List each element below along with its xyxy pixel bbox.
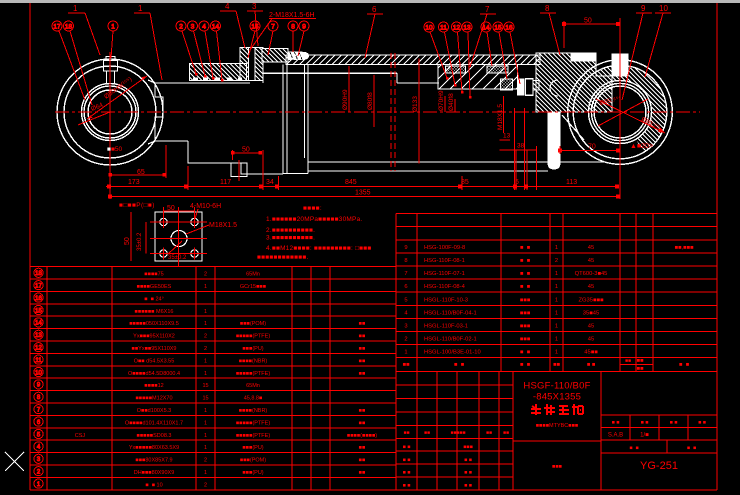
svg-text:■ ■: ■ ■ xyxy=(687,446,696,452)
svg-text:■■■80X85X7.9: ■■■80X85X7.9 xyxy=(135,458,172,464)
svg-text:■■: ■■ xyxy=(486,430,492,436)
svg-text:35±0.2: 35±0.2 xyxy=(168,255,187,261)
svg-text:■ ■: ■ ■ xyxy=(520,245,531,251)
svg-text:1: 1 xyxy=(204,420,207,426)
svg-text:14: 14 xyxy=(35,321,42,327)
svg-text:HSG-110F-07-1: HSG-110F-07-1 xyxy=(424,271,465,277)
svg-text:■ ■: ■ ■ xyxy=(587,362,596,368)
svg-text:HSGL-110F-03-1: HSGL-110F-03-1 xyxy=(424,323,468,329)
svg-text:5: 5 xyxy=(404,297,407,303)
svg-text:■ ■: ■ ■ xyxy=(403,470,411,476)
svg-text:■■■■■(PTFE): ■■■■■(PTFE) xyxy=(236,420,270,426)
svg-text:1: 1 xyxy=(204,309,207,315)
svg-text:■■50: ■■50 xyxy=(107,146,122,153)
svg-text:45: 45 xyxy=(588,245,594,251)
svg-text:1: 1 xyxy=(555,350,558,356)
svg-text:■■■(POM): ■■■(POM) xyxy=(240,458,266,464)
svg-text:5: 5 xyxy=(515,179,519,186)
svg-text:■ ■: ■ ■ xyxy=(520,350,531,356)
svg-text:3: 3 xyxy=(404,323,407,329)
svg-text:■■: ■■ xyxy=(359,408,366,414)
svg-text:■■■: ■■■ xyxy=(520,310,531,316)
svg-text:1.■■■■■■20MPa■■■■■30MPa.: 1.■■■■■■20MPa■■■■■30MPa. xyxy=(266,216,362,223)
svg-text:■ ■: ■ ■ xyxy=(641,420,649,426)
svg-text:11: 11 xyxy=(440,25,447,32)
svg-text:■■■■(NBR): ■■■■(NBR) xyxy=(239,408,268,414)
svg-text:HSG-110F-08-4: HSG-110F-08-4 xyxy=(424,284,466,290)
svg-text:■■■■GE50ES: ■■■■GE50ES xyxy=(137,284,172,290)
svg-text:■ ■ 24°: ■ ■ 24° xyxy=(144,296,164,302)
svg-text:■ ■: ■ ■ xyxy=(403,457,411,463)
svg-text:CSJ: CSJ xyxy=(75,433,86,439)
svg-text:65Mn: 65Mn xyxy=(246,383,260,389)
svg-text:38: 38 xyxy=(517,143,525,150)
svg-text:65: 65 xyxy=(137,169,145,176)
svg-text:HSGL-110/B0F-04-1: HSGL-110/B0F-04-1 xyxy=(424,310,477,316)
svg-text:O■■■■d101.4X110X1.7: O■■■■d101.4X110X1.7 xyxy=(125,420,183,426)
svg-text:45: 45 xyxy=(588,323,594,329)
svg-text:15: 15 xyxy=(494,25,502,32)
svg-text:■■Yx■■95X110X9: ■■Yx■■95X110X9 xyxy=(132,346,177,352)
svg-text:14: 14 xyxy=(212,24,220,31)
svg-text:Ø80f8: Ø80f8 xyxy=(367,92,374,110)
svg-text:■■■■(NBR): ■■■■(NBR) xyxy=(239,358,268,364)
svg-text:■■: ■■ xyxy=(359,420,366,426)
svg-text:50: 50 xyxy=(584,18,592,25)
svg-text:■■: ■■ xyxy=(359,445,366,451)
svg-text:14: 14 xyxy=(482,25,490,32)
svg-text:3.■■■■■■■■■■.: 3.■■■■■■■■■■. xyxy=(266,235,315,242)
svg-text:HSGL-100/B3E-01-10: HSGL-100/B3E-01-10 xyxy=(424,350,481,356)
svg-text:45: 45 xyxy=(588,336,594,342)
svg-text:6: 6 xyxy=(372,5,377,14)
svg-text:■■: ■■ xyxy=(503,430,509,436)
svg-text:8: 8 xyxy=(404,258,407,264)
svg-text:■■: ■■ xyxy=(359,470,366,476)
svg-text:16: 16 xyxy=(505,25,513,32)
svg-text:■ ■: ■ ■ xyxy=(670,420,678,426)
svg-text:■■■■■050X110X9.5: ■■■■■050X110X9.5 xyxy=(129,321,179,327)
svg-text:■ ■: ■ ■ xyxy=(612,420,620,426)
svg-text:2: 2 xyxy=(555,258,558,264)
svg-text:1: 1 xyxy=(555,245,558,251)
svg-text:9: 9 xyxy=(302,24,306,31)
svg-text:■■■: ■■■ xyxy=(520,297,531,303)
svg-text:■■: ■■ xyxy=(402,362,410,368)
svg-text:3: 3 xyxy=(191,24,195,31)
svg-text:6: 6 xyxy=(404,284,407,290)
svg-text:HSGL-110F-10-3: HSGL-110F-10-3 xyxy=(424,297,468,303)
svg-text:YG-251: YG-251 xyxy=(640,460,678,472)
svg-text:■■■■12: ■■■■12 xyxy=(144,383,163,389)
svg-text:■ ■: ■ ■ xyxy=(464,470,472,476)
svg-text:13: 13 xyxy=(463,25,471,32)
svg-text:17: 17 xyxy=(35,284,42,290)
svg-text:O■■ d54.5X3.55: O■■ d54.5X3.55 xyxy=(134,358,175,364)
svg-text:■ ■: ■ ■ xyxy=(403,483,411,489)
svg-text:1: 1 xyxy=(555,284,558,290)
svg-text:15: 15 xyxy=(202,396,208,402)
svg-text:■■■■■■ M6X16: ■■■■■■ M6X16 xyxy=(135,309,174,315)
svg-text:■■■(POM): ■■■(POM) xyxy=(240,321,266,327)
svg-text:■■: ■■ xyxy=(625,358,631,364)
svg-text:■■: ■■ xyxy=(359,346,366,352)
svg-text:1: 1 xyxy=(111,24,115,31)
svg-text:■■■■■(PTFE): ■■■■■(PTFE) xyxy=(236,371,270,377)
svg-text:15: 15 xyxy=(251,24,259,31)
svg-text:10: 10 xyxy=(35,370,42,376)
svg-text:■■■(PU): ■■■(PU) xyxy=(242,346,263,352)
svg-text:■■■(PU): ■■■(PU) xyxy=(242,470,263,476)
svg-text:■■■: ■■■ xyxy=(552,464,562,470)
svg-text:■■■■75: ■■■■75 xyxy=(144,272,163,278)
svg-text:■■■(PU): ■■■(PU) xyxy=(242,445,263,451)
svg-text:1: 1 xyxy=(555,271,558,277)
svg-text:1: 1 xyxy=(204,470,207,476)
svg-text:■■: ■■ xyxy=(636,358,644,364)
svg-text:117: 117 xyxy=(220,179,231,186)
svg-text:■■■■■M12X70: ■■■■■M12X70 xyxy=(135,396,172,402)
svg-text:■ ■: ■ ■ xyxy=(698,420,706,426)
svg-text:■■■■■SD08.3: ■■■■■SD08.3 xyxy=(137,433,172,439)
svg-text:45: 45 xyxy=(588,258,594,264)
svg-text:50: 50 xyxy=(242,147,250,154)
svg-text:■ ■: ■ ■ xyxy=(464,483,472,489)
svg-text:45■■: 45■■ xyxy=(584,350,598,356)
svg-text:Ø40f8: Ø40f8 xyxy=(448,93,455,111)
svg-text:■■■: ■■■ xyxy=(463,445,473,451)
svg-text:2: 2 xyxy=(204,458,207,464)
svg-text:■ ■: ■ ■ xyxy=(403,445,411,451)
svg-text:1: 1 xyxy=(204,358,207,364)
svg-text:1: 1 xyxy=(204,408,207,414)
svg-text:QT600-3■45: QT600-3■45 xyxy=(575,271,608,277)
svg-text:12: 12 xyxy=(35,346,42,352)
svg-text:1: 1 xyxy=(555,323,558,329)
svg-text:■■: ■■ xyxy=(359,458,366,464)
svg-text:2: 2 xyxy=(204,482,207,488)
svg-text:8: 8 xyxy=(291,24,295,31)
svg-text:ZG35■■■: ZG35■■■ xyxy=(578,297,604,303)
svg-text:■■■: ■■■ xyxy=(520,323,531,329)
svg-text:■■■■■(PTFE): ■■■■■(PTFE) xyxy=(236,433,270,439)
svg-text:9: 9 xyxy=(404,245,407,251)
svg-text:■■■■:: ■■■■: xyxy=(303,205,322,212)
svg-text:2: 2 xyxy=(179,24,183,31)
svg-text:Yx■■■95X110X2: Yx■■■95X110X2 xyxy=(133,334,175,340)
svg-text:173: 173 xyxy=(128,179,140,186)
svg-text:HSG-100F-09-8: HSG-100F-09-8 xyxy=(424,245,465,251)
svg-text:1: 1 xyxy=(138,4,143,13)
svg-text:■ ■: ■ ■ xyxy=(629,446,638,452)
svg-text:13: 13 xyxy=(35,333,42,339)
svg-text:11: 11 xyxy=(35,358,42,364)
svg-text:■■■■MTYBC■■■: ■■■■MTYBC■■■ xyxy=(536,423,579,429)
svg-text:4: 4 xyxy=(225,2,230,11)
svg-text:10: 10 xyxy=(659,4,668,13)
svg-text:■■■■(■■■■): ■■■■(■■■■) xyxy=(347,433,377,439)
svg-text:35■45: 35■45 xyxy=(583,310,599,316)
svg-text:10: 10 xyxy=(425,25,433,32)
svg-text:Ø133: Ø133 xyxy=(412,96,419,112)
svg-text:Ø70H9: Ø70H9 xyxy=(438,90,445,111)
svg-text:65Mn: 65Mn xyxy=(246,272,260,278)
svg-text:50: 50 xyxy=(124,237,131,245)
svg-text:■□■■P(□■): ■□■■P(□■) xyxy=(119,202,155,209)
svg-text:8: 8 xyxy=(545,4,550,13)
svg-text:1/■: 1/■ xyxy=(640,433,649,439)
svg-text:1: 1 xyxy=(555,297,558,303)
svg-text:7: 7 xyxy=(271,24,275,31)
svg-text:GCr15■■■: GCr15■■■ xyxy=(240,284,266,290)
svg-text:■ ■: ■ ■ xyxy=(454,362,465,368)
svg-text:1: 1 xyxy=(73,4,78,13)
svg-text:15: 15 xyxy=(202,383,208,389)
svg-text:■■: ■■ xyxy=(553,362,561,368)
svg-text:■■■■■: ■■■■■ xyxy=(450,430,465,436)
svg-text:■■■: ■■■ xyxy=(520,336,531,342)
svg-text:2: 2 xyxy=(204,346,207,352)
svg-text:34: 34 xyxy=(266,179,274,186)
svg-text:■ ■: ■ ■ xyxy=(520,258,531,264)
svg-text:■■: ■■ xyxy=(359,358,366,364)
svg-text:113: 113 xyxy=(566,179,577,186)
svg-text:O■■d100X5.3: O■■d100X5.3 xyxy=(137,408,171,414)
svg-text:S.A.B: S.A.B xyxy=(608,433,623,439)
svg-text:18: 18 xyxy=(35,271,42,277)
svg-text:2: 2 xyxy=(404,336,407,342)
svg-text:Yx■■■■■80X63.5X9: Yx■■■■■80X63.5X9 xyxy=(129,445,179,451)
svg-text:■ ■: ■ ■ xyxy=(464,457,472,463)
svg-text:1: 1 xyxy=(204,284,207,290)
svg-text:M18X1.5: M18X1.5 xyxy=(497,104,504,130)
svg-text:▲■20>: ▲■20> xyxy=(630,143,653,150)
svg-text:2: 2 xyxy=(204,272,207,278)
svg-text:Ø90H9: Ø90H9 xyxy=(342,89,349,110)
svg-text:HSG-110F-08-1: HSG-110F-08-1 xyxy=(424,258,465,264)
svg-text:45,8.8■: 45,8.8■ xyxy=(244,396,263,402)
svg-text:HSGL-110/B0F-02-1: HSGL-110/B0F-02-1 xyxy=(424,336,477,342)
svg-text:1: 1 xyxy=(555,310,558,316)
svg-text:■ ■: ■ ■ xyxy=(520,284,531,290)
svg-text:845: 845 xyxy=(345,179,357,186)
svg-text:1: 1 xyxy=(204,321,207,327)
svg-text:■ ■: ■ ■ xyxy=(520,362,531,368)
svg-text:■ ■: ■ ■ xyxy=(679,362,690,368)
svg-text:■ ■: ■ ■ xyxy=(520,271,531,277)
svg-text:2.■■■■■■■■■■.: 2.■■■■■■■■■■. xyxy=(266,227,315,234)
svg-text:■■■■■■■■■■■■.: ■■■■■■■■■■■■. xyxy=(257,254,309,261)
svg-text:■ ■ 10: ■ ■ 10 xyxy=(145,482,162,488)
svg-text:9: 9 xyxy=(641,4,646,13)
svg-text:M18X1.5: M18X1.5 xyxy=(209,222,237,229)
svg-text:16: 16 xyxy=(35,296,42,302)
svg-text:2: 2 xyxy=(204,334,207,340)
svg-text:18: 18 xyxy=(65,24,73,31)
svg-text:70: 70 xyxy=(588,144,596,151)
svg-text:1: 1 xyxy=(555,336,558,342)
svg-text:1355: 1355 xyxy=(355,190,371,197)
svg-text:50: 50 xyxy=(167,205,175,212)
svg-text:2-M18X1.5-6H: 2-M18X1.5-6H xyxy=(269,12,315,19)
svg-text:85: 85 xyxy=(461,179,469,186)
svg-text:7: 7 xyxy=(485,5,490,14)
svg-text:15: 15 xyxy=(35,308,42,314)
svg-text:DH■■■80X90X9: DH■■■80X90X9 xyxy=(134,470,175,476)
svg-text:12: 12 xyxy=(453,25,461,32)
svg-text:■■: ■■ xyxy=(636,366,644,372)
svg-text:1: 1 xyxy=(204,371,207,377)
svg-text:7: 7 xyxy=(404,271,407,277)
svg-text:-845X1355: -845X1355 xyxy=(533,392,581,403)
svg-text:■■■■■(PTFE): ■■■■■(PTFE) xyxy=(236,334,270,340)
svg-text:■■: ■■ xyxy=(403,430,409,436)
svg-text:35±0.2: 35±0.2 xyxy=(137,232,143,251)
svg-text:■■,■■■: ■■,■■■ xyxy=(674,245,694,251)
svg-text:17: 17 xyxy=(53,24,61,31)
svg-text:4-M10-6H: 4-M10-6H xyxy=(190,203,221,210)
svg-text:O■■■■d54.5D8000.4: O■■■■d54.5D8000.4 xyxy=(128,371,180,377)
svg-text:1: 1 xyxy=(204,433,207,439)
svg-text:4.■■M12■■■■: ■■■■■■■■■: □■■■: 4.■■M12■■■■: ■■■■■■■■■: □■■■ xyxy=(266,245,371,252)
svg-text:■■: ■■ xyxy=(359,321,366,327)
svg-text:■■: ■■ xyxy=(359,371,366,377)
svg-text:3: 3 xyxy=(252,2,257,11)
svg-text:13: 13 xyxy=(503,133,511,140)
svg-text:■■: ■■ xyxy=(359,334,366,340)
svg-text:■■: ■■ xyxy=(424,430,430,436)
svg-text:4: 4 xyxy=(202,24,206,31)
svg-text:HSGF-110/B0F: HSGF-110/B0F xyxy=(523,381,590,392)
svg-text:1: 1 xyxy=(204,445,207,451)
svg-text:45: 45 xyxy=(588,284,594,290)
svg-text:1: 1 xyxy=(404,350,407,356)
